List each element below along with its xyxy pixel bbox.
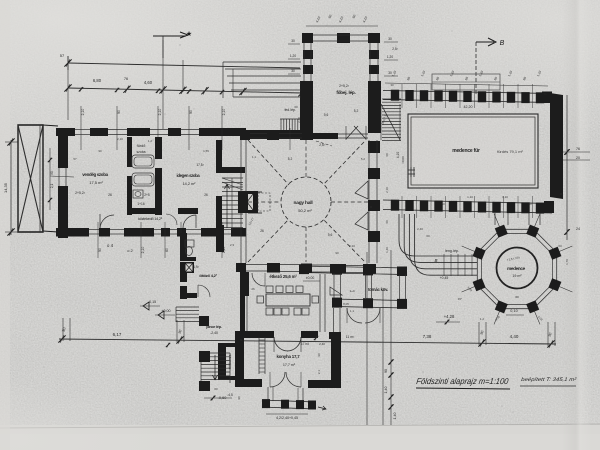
svg-text:30: 30	[543, 92, 547, 96]
svg-text:1,1: 1,1	[350, 309, 355, 313]
svg-text:±0,00: ±0,00	[306, 276, 315, 280]
svg-text:1,40: 1,40	[385, 247, 389, 253]
svg-text:beépített T: 345,1 m²: beépített T: 345,1 m²	[521, 377, 577, 383]
svg-text:2,40: 2,40	[297, 117, 301, 123]
svg-text:4,10: 4,10	[396, 152, 400, 159]
svg-text:o 4: o 4	[107, 243, 114, 248]
svg-text:26: 26	[260, 229, 264, 233]
svg-text:60: 60	[441, 202, 445, 206]
svg-text:60: 60	[294, 105, 298, 109]
svg-text:+0,45: +0,45	[440, 276, 449, 280]
svg-text:öltöző 4,2²: öltöző 4,2²	[199, 273, 217, 278]
svg-text:17,5²: 17,5²	[196, 163, 203, 167]
svg-text:9,6: 9,6	[328, 233, 333, 237]
svg-text:14,2 m²: 14,2 m²	[183, 182, 197, 186]
svg-text:±0,00: ±0,00	[162, 309, 171, 313]
svg-text:6,80: 6,80	[93, 78, 102, 83]
svg-text:26: 26	[251, 287, 255, 291]
svg-text:60: 60	[528, 202, 532, 206]
svg-text:2,40: 2,40	[417, 227, 423, 231]
svg-text:étkező 25,6 m²: étkező 25,6 m²	[269, 274, 297, 279]
svg-text:medence für: medence für	[452, 148, 480, 154]
svg-text:2,40: 2,40	[319, 342, 325, 346]
svg-text:30: 30	[388, 37, 392, 41]
svg-text:90: 90	[317, 353, 321, 357]
svg-text:tornác köv.: tornác köv.	[368, 287, 388, 292]
svg-text:vendég szoba: vendég szoba	[82, 172, 108, 177]
svg-text:90: 90	[384, 369, 388, 373]
svg-text:1+16: 1+16	[137, 202, 144, 206]
svg-text:Földszinti alaprajz m=1:100: Földszinti alaprajz m=1:100	[416, 376, 510, 386]
svg-text:1,40: 1,40	[393, 413, 397, 420]
svg-text:2,10: 2,10	[222, 109, 226, 116]
svg-text:szoba: szoba	[136, 150, 145, 154]
svg-text:2,1: 2,1	[317, 370, 321, 375]
svg-text:konyha 17,7: konyha 17,7	[277, 354, 301, 359]
svg-text:19 m²: 19 m²	[512, 274, 522, 278]
svg-text:42,20: 42,20	[464, 105, 473, 109]
svg-text:2,10: 2,10	[141, 247, 145, 254]
svg-text:9,6: 9,6	[324, 113, 329, 117]
svg-text:±0,00: ±0,00	[401, 156, 405, 164]
svg-text:26: 26	[434, 93, 438, 97]
svg-text:idegen szoba: idegen szoba	[177, 173, 201, 178]
svg-text:17 hő: 17 hő	[301, 342, 309, 346]
svg-text:30: 30	[291, 69, 295, 73]
svg-text:30: 30	[390, 83, 394, 87]
svg-text:30: 30	[291, 39, 295, 43]
svg-text:7,38: 7,38	[423, 334, 432, 339]
svg-text:1,40: 1,40	[384, 387, 388, 394]
svg-text:1,20: 1,20	[290, 54, 296, 58]
svg-text:6,17: 6,17	[113, 332, 122, 337]
svg-text:5,2: 5,2	[354, 109, 359, 113]
svg-text:60: 60	[558, 244, 562, 248]
svg-text:60: 60	[385, 153, 389, 157]
svg-text:1,20: 1,20	[387, 55, 393, 59]
svg-text:2,5²: 2,5²	[392, 47, 398, 51]
svg-text:1,2: 1,2	[148, 139, 153, 143]
svg-text:2+5: 2+5	[144, 193, 150, 197]
svg-text:60: 60	[214, 387, 218, 391]
svg-text:76: 76	[576, 147, 580, 151]
svg-text:2,5²: 2,5²	[319, 143, 325, 147]
svg-text:4,2/2,40+0,45: 4,2/2,40+0,45	[276, 416, 298, 420]
svg-text:1+4: 1+4	[349, 289, 354, 293]
svg-text:2,1: 2,1	[50, 184, 54, 189]
svg-text:17,5 m²: 17,5 m²	[89, 180, 103, 185]
svg-text:B: B	[500, 40, 505, 47]
svg-text:26: 26	[108, 193, 112, 197]
svg-text:90: 90	[237, 396, 241, 400]
svg-text:1,2: 1,2	[480, 317, 485, 321]
svg-text:45°: 45°	[458, 297, 463, 301]
svg-text:90: 90	[50, 171, 54, 175]
svg-text:90: 90	[98, 149, 102, 153]
svg-text:1,70: 1,70	[565, 259, 569, 265]
svg-text:1,55: 1,55	[203, 149, 209, 153]
svg-text:14,35: 14,35	[3, 182, 8, 193]
svg-text:57: 57	[73, 157, 77, 161]
svg-text:-4,5: -4,5	[227, 393, 233, 397]
svg-text:11 m²: 11 m²	[346, 335, 355, 339]
svg-text:0,10: 0,10	[510, 309, 517, 313]
svg-text:17,7 m²: 17,7 m²	[283, 363, 296, 367]
svg-text:2+5,2²: 2+5,2²	[75, 191, 86, 195]
svg-text:60: 60	[515, 295, 519, 299]
svg-text:50,2 m²: 50,2 m²	[298, 208, 312, 213]
svg-text:20: 20	[576, 156, 580, 160]
svg-text:közlekedő 14,2²: közlekedő 14,2²	[138, 217, 163, 221]
svg-text:2,10: 2,10	[81, 109, 85, 116]
svg-text:2+5,2²: 2+5,2²	[339, 84, 350, 88]
svg-text:90: 90	[117, 110, 121, 114]
svg-text:2,10: 2,10	[158, 109, 162, 116]
svg-text:8,05: 8,05	[343, 302, 349, 306]
svg-text:B: B	[434, 258, 437, 263]
svg-text:2,10: 2,10	[349, 244, 355, 248]
svg-text:1,10: 1,10	[467, 195, 473, 199]
svg-text:nagy hall: nagy hall	[294, 200, 313, 206]
svg-text:1,1: 1,1	[252, 155, 257, 159]
svg-text:4,40: 4,40	[510, 334, 519, 339]
svg-text:5,2: 5,2	[288, 157, 293, 161]
svg-text:medence: medence	[507, 266, 526, 271]
svg-text:fürdő: fürdő	[137, 144, 146, 148]
svg-text:★: ★	[186, 30, 192, 38]
svg-text:4,60: 4,60	[144, 80, 153, 85]
svg-text:2,10: 2,10	[117, 137, 123, 141]
svg-text:90: 90	[98, 248, 102, 252]
svg-text:57: 57	[60, 53, 65, 58]
svg-text:5,2: 5,2	[361, 157, 366, 161]
svg-text:90: 90	[189, 110, 193, 114]
svg-text:pince lép.: pince lép.	[206, 325, 222, 329]
svg-text:76: 76	[124, 77, 128, 81]
svg-text:60: 60	[426, 234, 430, 238]
svg-text:+4,28: +4,28	[444, 314, 455, 319]
svg-text:90: 90	[335, 251, 339, 255]
svg-text:o 2: o 2	[127, 248, 133, 253]
svg-text:60: 60	[165, 248, 169, 252]
svg-text:főbej. lép.: főbej. lép.	[336, 90, 355, 95]
svg-text:2,10: 2,10	[385, 187, 389, 193]
svg-text:leng. lép.: leng. lép.	[445, 249, 459, 253]
svg-text:26: 26	[204, 193, 208, 197]
svg-text:-2,40: -2,40	[210, 331, 218, 335]
svg-text:1,10: 1,10	[502, 195, 508, 199]
svg-text:2,3: 2,3	[230, 243, 235, 247]
svg-text:fürdés 79,1 m²: fürdés 79,1 m²	[497, 149, 523, 154]
svg-text:1,9²: 1,9²	[193, 265, 199, 269]
svg-text:24: 24	[576, 227, 580, 231]
svg-text:60: 60	[385, 220, 389, 224]
